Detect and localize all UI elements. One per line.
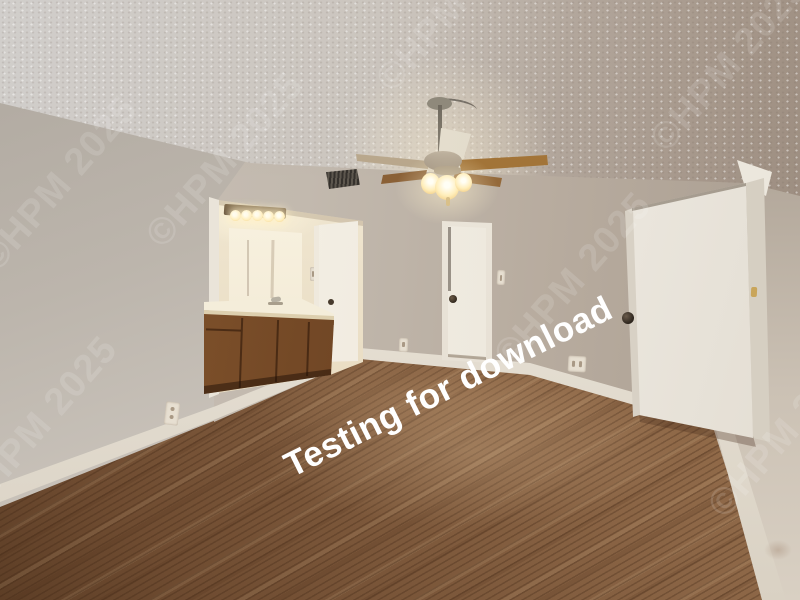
fan-light-globe bbox=[455, 173, 472, 192]
vanity-light-bulb bbox=[230, 210, 241, 221]
strike-plate bbox=[751, 287, 758, 297]
closet-door-hinge-gap bbox=[448, 227, 451, 291]
vanity-light-bulb bbox=[241, 210, 252, 221]
vanity-light-bulb bbox=[252, 210, 263, 221]
fan-finial bbox=[446, 197, 450, 206]
mirror-reflection-line bbox=[247, 240, 249, 296]
closet-door-knob bbox=[449, 295, 457, 303]
vanity-light-bulb bbox=[274, 211, 285, 222]
entry-door-knob bbox=[622, 312, 634, 324]
power-outlet bbox=[399, 338, 408, 352]
wall-smudge bbox=[764, 540, 792, 560]
bathroom-door-knob bbox=[328, 299, 334, 305]
faucet-base bbox=[268, 302, 283, 305]
power-outlet bbox=[568, 356, 587, 373]
room-photo: ©HPM 2025 ©HPM 2025 ©HPM 2025 ©HPM 2025 … bbox=[0, 0, 800, 600]
light-switch bbox=[497, 270, 506, 285]
power-outlet bbox=[164, 401, 181, 426]
vanity-light-bulb bbox=[263, 211, 274, 222]
